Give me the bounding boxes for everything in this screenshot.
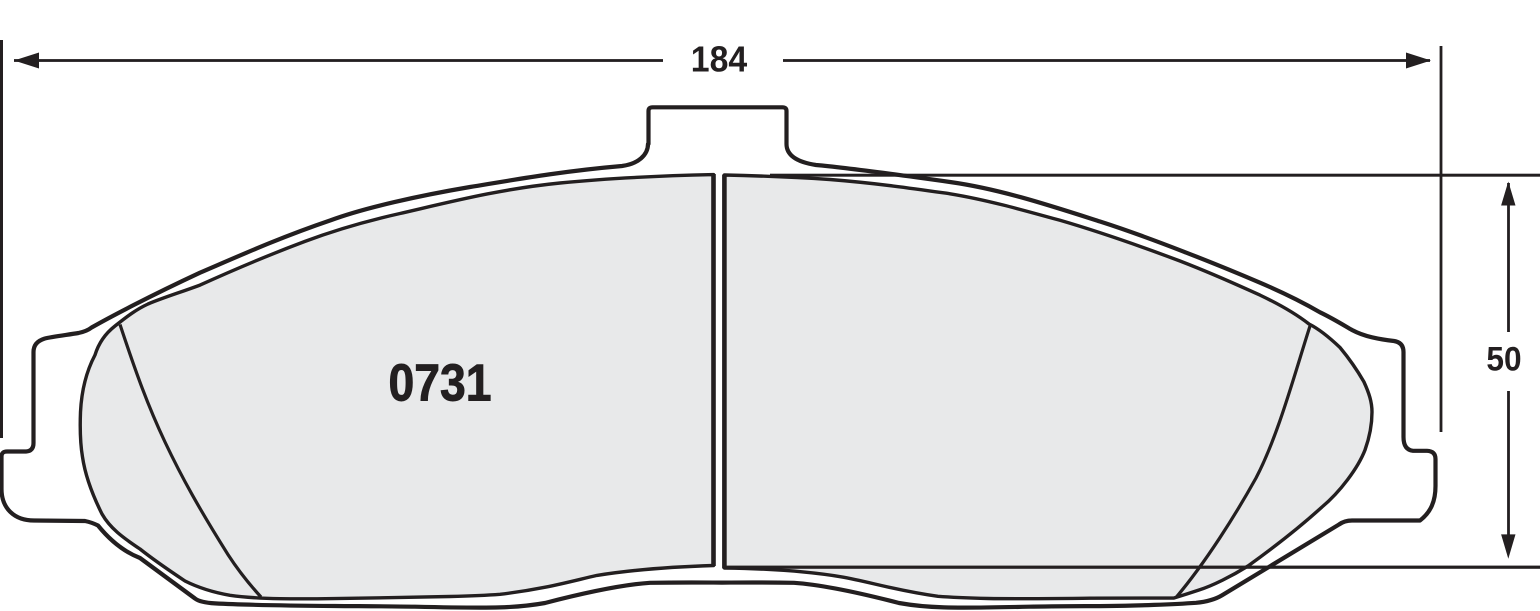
svg-text:0731: 0731 bbox=[388, 355, 491, 412]
svg-text:184: 184 bbox=[691, 40, 748, 80]
svg-text:50: 50 bbox=[1486, 340, 1521, 378]
